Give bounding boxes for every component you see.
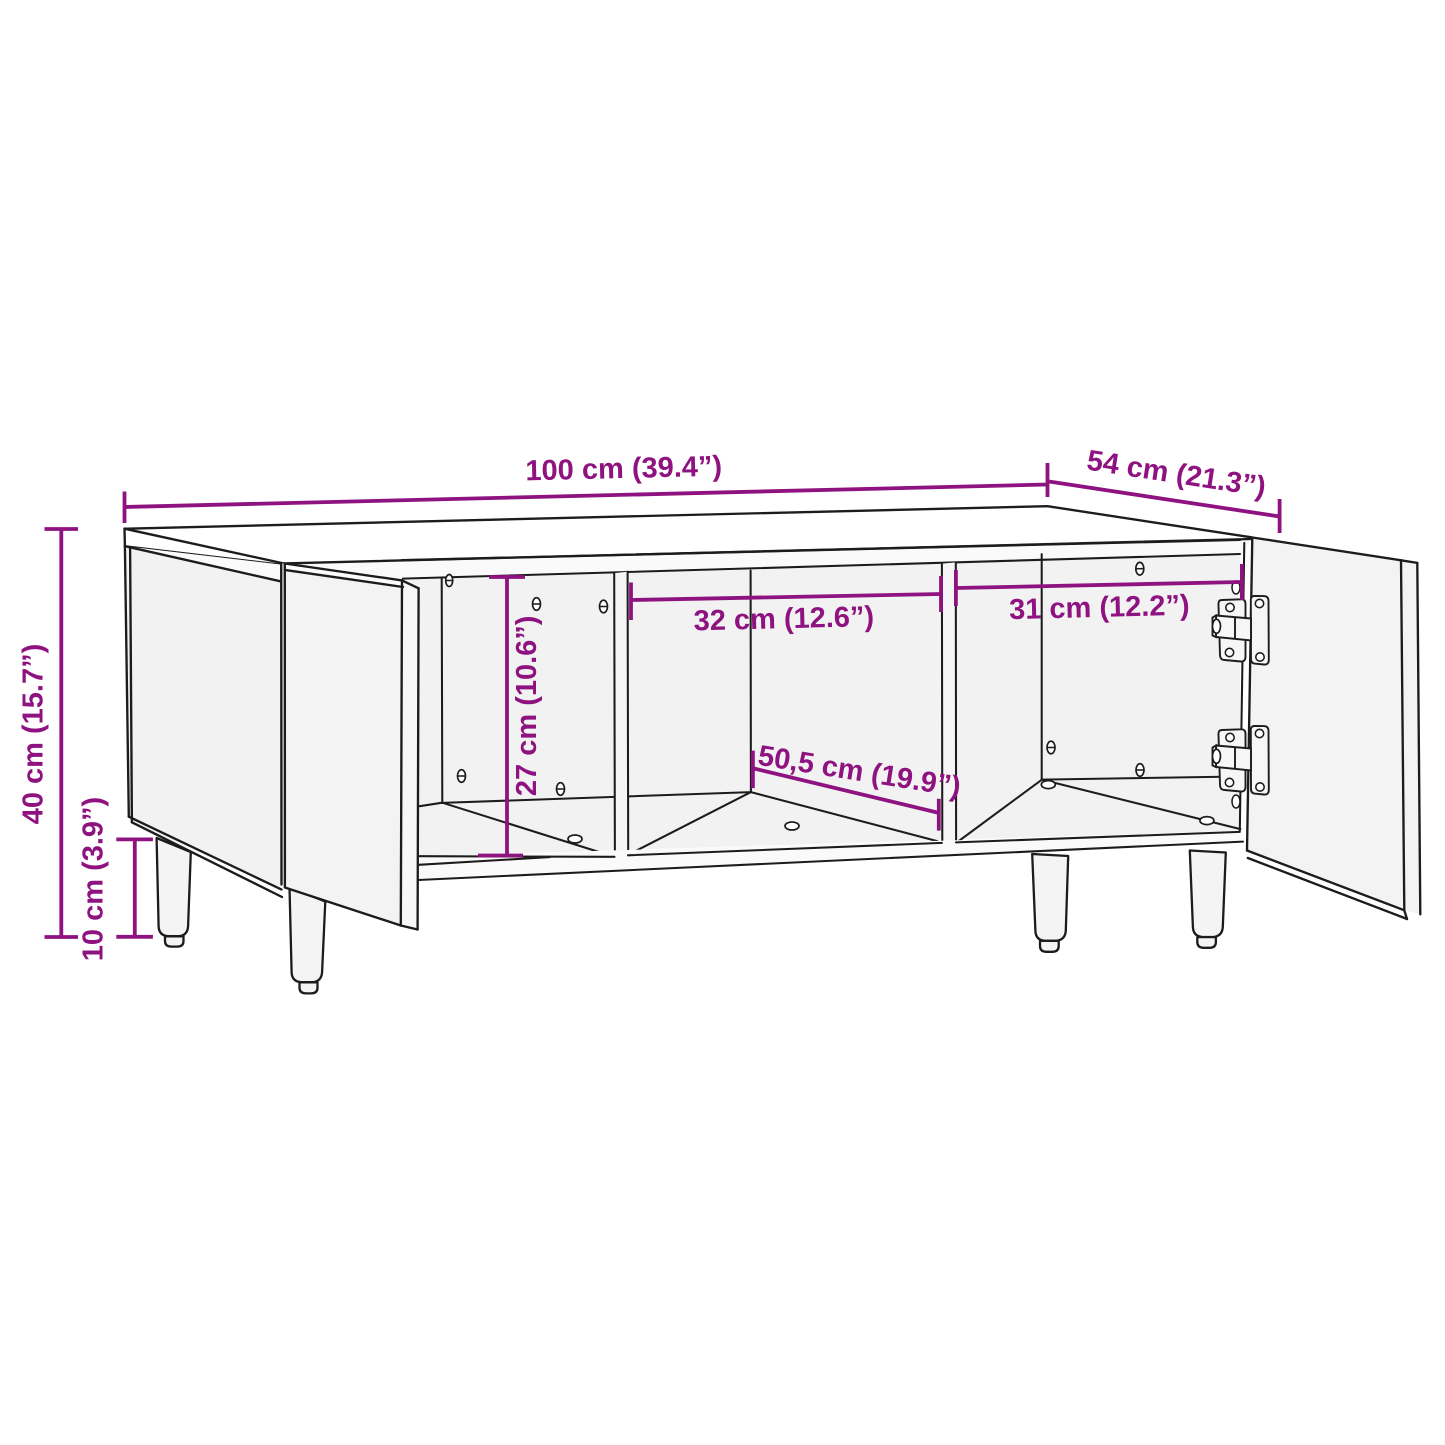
- svg-text:32 cm (12.6”): 32 cm (12.6”): [693, 601, 874, 637]
- svg-text:40 cm (15.7”): 40 cm (15.7”): [18, 644, 50, 825]
- svg-text:100 cm (39.4”): 100 cm (39.4”): [525, 451, 722, 488]
- svg-text:31 cm (12.2”): 31 cm (12.2”): [1009, 590, 1190, 626]
- svg-text:10 cm (3.9”): 10 cm (3.9”): [77, 797, 109, 961]
- svg-text:27 cm (10.6”): 27 cm (10.6”): [511, 616, 543, 797]
